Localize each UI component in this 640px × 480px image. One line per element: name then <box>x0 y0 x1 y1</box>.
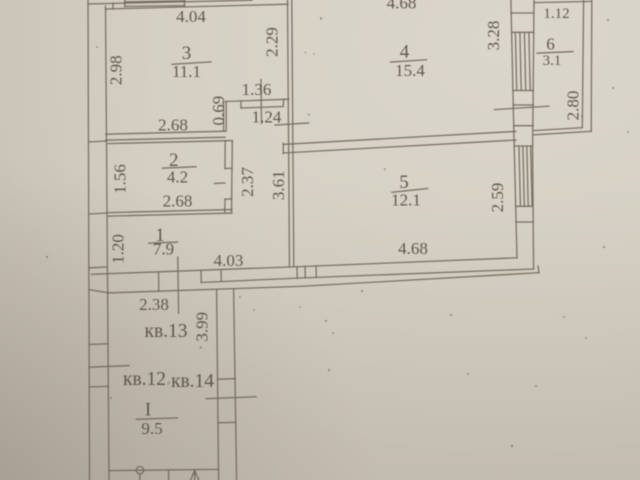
svg-text:2.80: 2.80 <box>563 91 582 121</box>
svg-text:9.5: 9.5 <box>141 419 162 438</box>
svg-text:0.69: 0.69 <box>209 96 228 126</box>
svg-text:4: 4 <box>400 42 410 63</box>
svg-text:3.1: 3.1 <box>543 53 562 69</box>
svg-text:2.29: 2.29 <box>262 27 281 57</box>
svg-text:кв.14: кв.14 <box>171 371 214 392</box>
svg-text:кв.13: кв.13 <box>144 321 187 342</box>
svg-text:1.56: 1.56 <box>111 164 130 194</box>
svg-text:6: 6 <box>546 34 555 53</box>
svg-text:1.24: 1.24 <box>252 107 282 126</box>
svg-text:1.36: 1.36 <box>242 80 272 99</box>
svg-text:4.68: 4.68 <box>398 239 428 258</box>
svg-text:3.99: 3.99 <box>192 312 211 342</box>
svg-text:кв.12: кв.12 <box>123 369 166 390</box>
svg-text:3.61: 3.61 <box>269 170 288 200</box>
svg-text:4.68: 4.68 <box>387 0 417 13</box>
svg-text:2.59: 2.59 <box>488 183 507 213</box>
svg-text:1.20: 1.20 <box>109 234 128 264</box>
svg-text:2.37: 2.37 <box>238 167 257 197</box>
svg-text:2.68: 2.68 <box>163 191 193 210</box>
svg-text:2.68: 2.68 <box>158 116 188 135</box>
svg-text:4.04: 4.04 <box>176 7 206 26</box>
svg-text:15.4: 15.4 <box>395 61 425 80</box>
svg-text:I: I <box>145 400 151 421</box>
svg-text:11.1: 11.1 <box>172 62 201 81</box>
svg-text:4.2: 4.2 <box>167 167 188 186</box>
svg-text:7.9: 7.9 <box>153 239 174 258</box>
svg-text:3.28: 3.28 <box>484 21 503 51</box>
svg-text:12.1: 12.1 <box>391 191 421 210</box>
svg-text:2.38: 2.38 <box>139 295 169 314</box>
svg-text:2.98: 2.98 <box>106 55 125 85</box>
svg-text:4.03: 4.03 <box>214 251 244 270</box>
svg-text:1.12: 1.12 <box>543 6 569 22</box>
